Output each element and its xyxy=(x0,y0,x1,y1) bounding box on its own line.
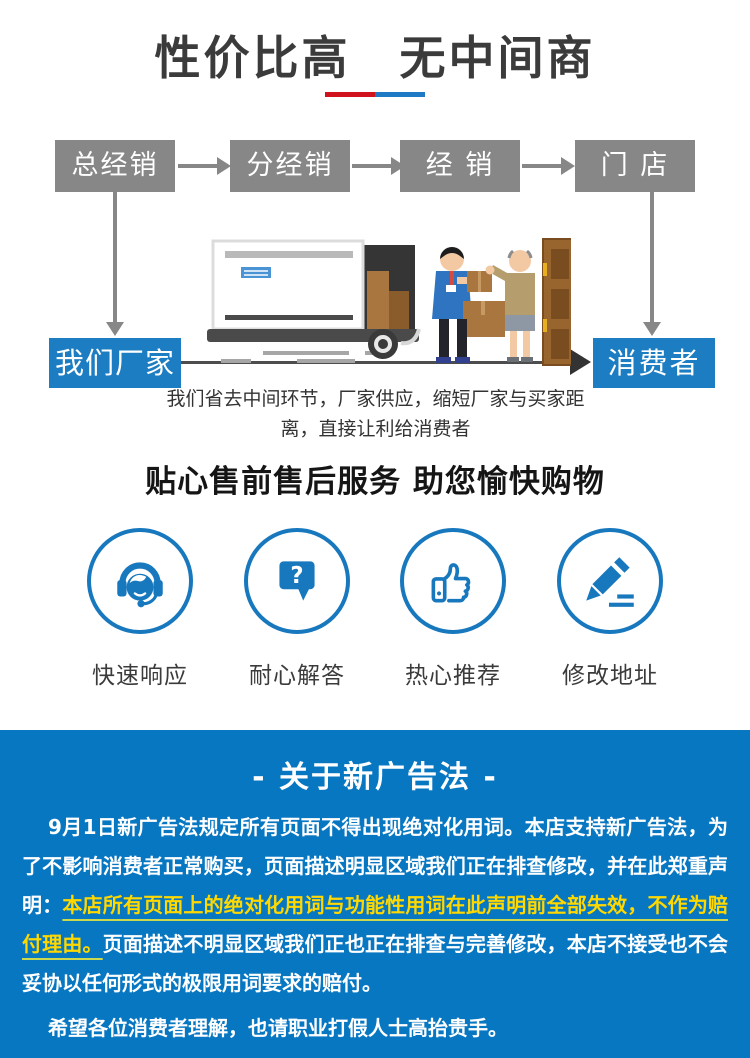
arrow-down-icon xyxy=(106,322,124,336)
flow-box-consumer: 消费者 xyxy=(593,338,715,388)
arrow-right-icon xyxy=(352,164,392,168)
arrow-right-icon xyxy=(522,164,562,168)
blue-accent-bar xyxy=(375,92,425,97)
delivery-illustration xyxy=(205,233,571,366)
title-underline-accent xyxy=(325,92,425,97)
service-item-fast-response xyxy=(87,528,193,634)
notice-text-end: 页面描述不明显区域我们正也正在排查与完善修改，本店不接受也不会妥协以任何形式的极… xyxy=(22,932,728,995)
arrow-right-icon xyxy=(178,164,218,168)
connector-line-right xyxy=(650,192,654,322)
flow-box-general-distributor: 总经销 xyxy=(55,140,175,192)
arrow-right-icon xyxy=(570,349,591,375)
service-item-patient-answers: ? xyxy=(244,528,350,634)
customer-service-headset-icon xyxy=(109,550,171,612)
service-label: 修改地址 xyxy=(540,656,680,690)
flow-caption: 我们省去中间环节，厂家供应，缩短厂家与买家距离，直接让利给消费者 xyxy=(163,384,588,445)
flow-box-our-factory: 我们厂家 xyxy=(49,338,181,388)
connector-line-left xyxy=(113,192,117,322)
pencil-edit-icon xyxy=(579,550,641,612)
question-mark-glyph: ? xyxy=(290,563,303,589)
service-label: 快速响应 xyxy=(70,656,210,690)
flow-box-dealer: 经 销 xyxy=(400,140,520,192)
services-title: 贴心售前售后服务 助您愉快购物 xyxy=(0,456,750,501)
page-title: 性价比高 无中间商 xyxy=(0,22,750,88)
red-accent-bar xyxy=(325,92,375,97)
notice-title: - 关于新广告法 - xyxy=(0,730,750,796)
arrow-down-icon xyxy=(643,322,661,336)
service-item-warm-recommendation xyxy=(400,528,506,634)
question-bubble-icon: ? xyxy=(266,550,328,612)
service-label: 热心推荐 xyxy=(383,656,523,690)
flow-box-sub-distributor: 分经销 xyxy=(230,140,350,192)
product-detail-promo-page: 性价比高 无中间商 总经销 分经销 经 销 门 店 我们厂家 消费者 xyxy=(0,0,750,1058)
service-label: 耐心解答 xyxy=(227,656,367,690)
flow-box-store: 门 店 xyxy=(575,140,695,192)
thumbs-up-icon xyxy=(422,550,484,612)
notice-paragraph-2: 希望各位消费者理解，也请职业打假人士高抬贵手。 xyxy=(22,1009,728,1048)
service-item-change-address xyxy=(557,528,663,634)
notice-body: 9月1日新广告法规定所有页面不得出现绝对化用词。本店支持新广告法，为了不影响消费… xyxy=(22,808,728,1048)
notice-paragraph-1: 9月1日新广告法规定所有页面不得出现绝对化用词。本店支持新广告法，为了不影响消费… xyxy=(22,808,728,1003)
advertising-law-notice: - 关于新广告法 - 9月1日新广告法规定所有页面不得出现绝对化用词。本店支持新… xyxy=(0,730,750,1058)
